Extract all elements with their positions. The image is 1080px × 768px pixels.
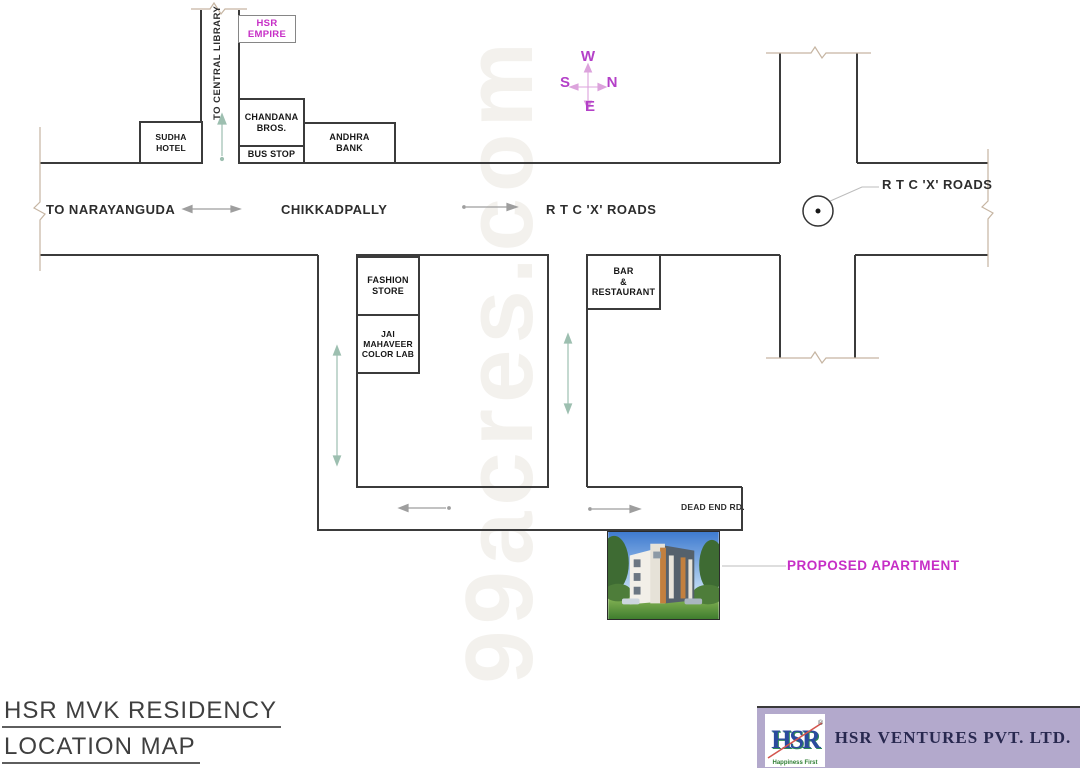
label-to-central-library: TO CENTRAL LIBRARY: [212, 18, 223, 120]
hsr-logo-graphic: HSR HSR ® Happiness First: [765, 714, 825, 767]
leader-lines: [722, 187, 879, 566]
company-name: HSR VENTURES PVT. LTD.: [829, 728, 1077, 748]
label-chikkadpally: CHIKKADPALLY: [281, 202, 387, 217]
company-logo: HSR HSR ® Happiness First: [765, 714, 825, 767]
compass-west: W: [579, 48, 597, 65]
footer-panel: HSR HSR ® Happiness First HSR VENTURES P…: [757, 706, 1080, 768]
label-rtc-x-roads: R T C 'X' ROADS: [546, 202, 656, 217]
road-outlines: [40, 10, 988, 530]
building-hsr-empire: HSR EMPIRE: [238, 15, 296, 43]
map-subtitle: LOCATION MAP: [2, 733, 200, 764]
map-lines: [0, 0, 1080, 768]
proposed-apartment-photo: [607, 531, 720, 620]
label-rtc-x-roads-callout: R T C 'X' ROADS: [882, 177, 992, 192]
building-jai-mahaveer-color-lab: JAI MAHAVEER COLOR LAB: [356, 314, 420, 374]
logo-tagline: Happiness First: [772, 760, 817, 766]
rtc-callout-leader: [828, 187, 879, 202]
label-to-narayanguda: TO NARAYANGUDA: [46, 202, 175, 217]
label-proposed-apartment: PROPOSED APARTMENT: [787, 558, 960, 573]
compass-east: E: [581, 98, 599, 115]
building-andhra-bank: ANDHRA BANK: [303, 122, 396, 164]
building-chandana-bros: CHANDANA BROS.: [238, 98, 305, 147]
compass-south: S: [556, 74, 574, 91]
label-dead-end-rd: DEAD END RD.: [681, 502, 745, 512]
break-lines: [34, 3, 993, 363]
building-sudha-hotel: SUDHA HOTEL: [139, 121, 203, 164]
roundabout-icon: [803, 196, 833, 226]
building-bus-stop: BUS STOP: [238, 145, 305, 164]
building-fashion-store: FASHION STORE: [356, 256, 420, 316]
registered-mark: ®: [818, 719, 824, 727]
apartment-illustration: [608, 532, 719, 619]
compass-north: N: [603, 74, 621, 91]
title-block: HSR MVK RESIDENCY LOCATION MAP: [2, 697, 281, 768]
project-title: HSR MVK RESIDENCY: [2, 697, 281, 728]
building-bar-restaurant: BAR & RESTAURANT: [586, 254, 661, 310]
location-map: 99acres.com: [0, 0, 1080, 768]
